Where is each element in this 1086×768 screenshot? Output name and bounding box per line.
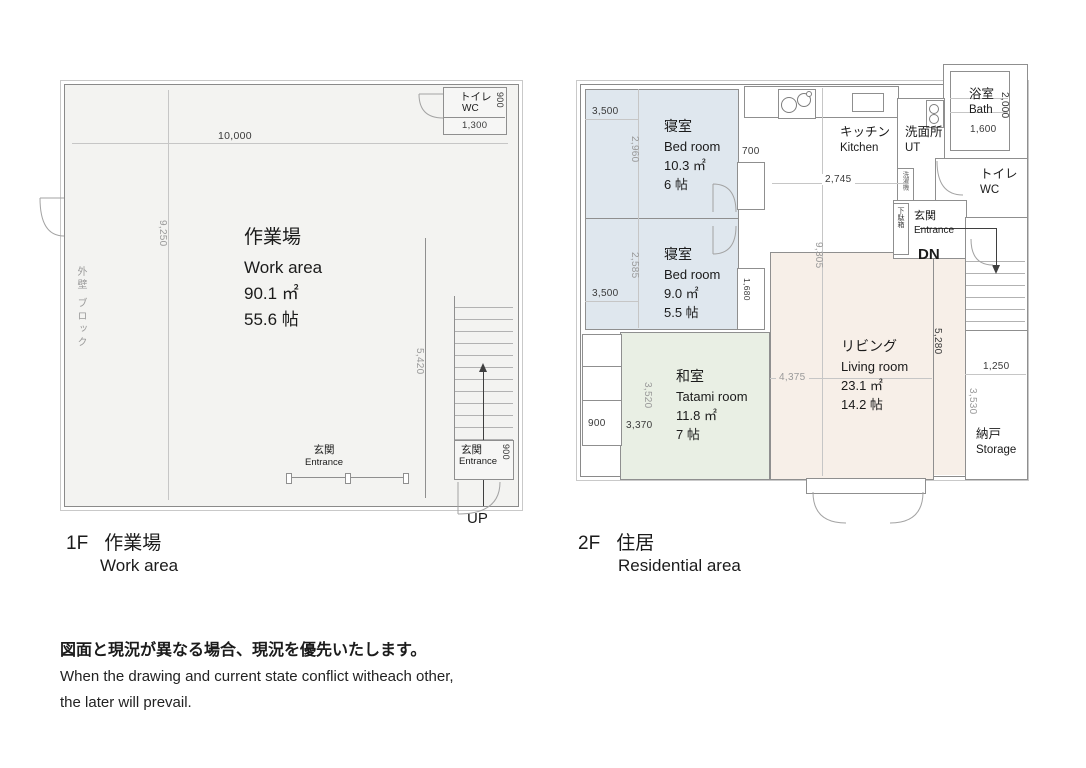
caption-1f-en: Work area [100,556,178,576]
1f-door-arcs [34,84,520,544]
2f-door-arcs [576,62,1032,532]
caption-2f: 2F住居 [578,528,654,555]
door-arc [458,482,500,514]
disclaimer: 図面と現況が異なる場合、現況を優先いたします。 When the drawing… [60,638,454,716]
disclaimer-en2: the later will prevail. [60,690,454,716]
caption-2f-en: Residential area [618,556,741,576]
caption-1f: 1F作業場 [66,528,161,555]
door-arc [890,492,923,523]
disclaimer-en1: When the drawing and current state confl… [60,664,454,690]
disclaimer-jp: 図面と現況が異なる場合、現況を優先いたします。 [60,638,454,664]
door-arc [971,239,993,265]
caption-1f-floor: 1F [66,533,88,554]
door-arc [813,492,846,523]
caption-1f-jp: 作業場 [104,533,161,554]
door-arc [40,198,64,236]
door-arc [937,161,963,195]
door-arc [713,226,736,254]
floor-plan-2f: 洗濯機 下駄箱 寝室 Bed room 10.3 ㎡ 6 帖 寝室 Bed ro… [576,62,1032,514]
door-arc [419,94,443,118]
floor-plan-1f: トイレ WC 1,300 900 10,000 9,250 5,420 作業場 … [64,84,520,508]
caption-2f-jp: 住居 [616,533,654,554]
caption-2f-floor: 2F [578,533,600,554]
door-arc [713,184,736,212]
